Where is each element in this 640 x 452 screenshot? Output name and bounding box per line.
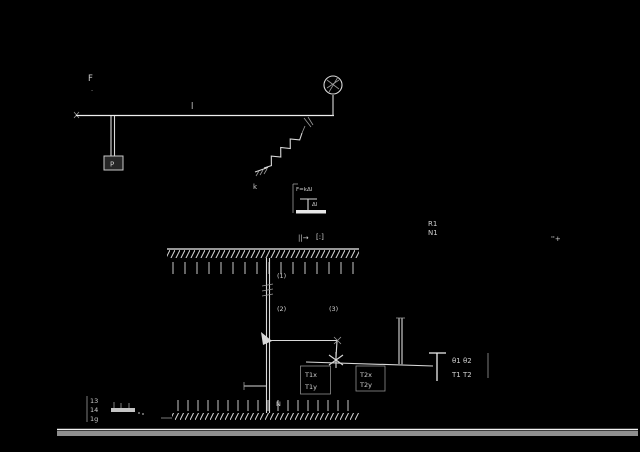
box2-line2: T2y bbox=[359, 381, 372, 389]
rope-binding-marks bbox=[262, 284, 273, 296]
force-label: F bbox=[88, 74, 93, 84]
wall-bracket bbox=[429, 353, 446, 381]
spring-attachment-knot bbox=[302, 117, 313, 133]
footnote-mini-bar bbox=[111, 408, 135, 412]
spring-constant-label: k bbox=[253, 183, 258, 191]
diagram-svg: F . l P k F=kΔl Δl ||→ [:] bbox=[0, 0, 640, 452]
side-label-row2: N1 bbox=[428, 229, 438, 237]
box1-line1: T1x bbox=[304, 371, 317, 379]
footnote-row-3: 1g bbox=[90, 415, 98, 423]
box2-line1: T2x bbox=[359, 371, 372, 379]
ceiling-hatch-band bbox=[167, 250, 359, 258]
footnote-block: 13 14 1g bbox=[87, 396, 144, 423]
equation-inset: F=kΔl Δl bbox=[293, 184, 326, 214]
top-diagram: F . l P k F=kΔl Δl bbox=[74, 74, 342, 214]
footnote-dot-2 bbox=[142, 413, 144, 415]
knot-star bbox=[329, 352, 343, 368]
horizontal-rope-right bbox=[306, 362, 433, 366]
rope-label-2: (2) bbox=[277, 305, 286, 313]
footnote-row-2: 14 bbox=[90, 406, 98, 414]
lower-diagram: ||→ [:] (1) (2) (3) T1x T1y T2x T2y θ1 θ… bbox=[57, 220, 638, 436]
ground-hatch-band bbox=[172, 413, 360, 420]
footnote-dot-1 bbox=[138, 412, 140, 414]
ground-tick-row bbox=[178, 400, 348, 411]
footnote-row-1: 13 bbox=[90, 397, 98, 405]
bracket-label-row2: T1 T2 bbox=[451, 371, 472, 379]
ceiling-tick-row bbox=[173, 262, 353, 274]
header-right-label: [:] bbox=[316, 233, 324, 241]
rope-label-1: (1) bbox=[277, 272, 286, 280]
corner-note: ''+ bbox=[551, 235, 561, 243]
box1-line2: T1y bbox=[304, 383, 317, 391]
weight-label: P bbox=[110, 161, 114, 169]
header-left-label: ||→ bbox=[298, 234, 309, 242]
inset-equation-2: Δl bbox=[312, 202, 318, 208]
figure-canvas: F . l P k F=kΔl Δl ||→ [:] bbox=[0, 0, 640, 452]
side-label-row1: R1 bbox=[428, 220, 437, 228]
beam-length-label: l bbox=[191, 102, 193, 112]
inset-equation-1: F=kΔl bbox=[296, 187, 313, 193]
inset-base bbox=[296, 210, 326, 214]
pulley-shading bbox=[327, 77, 339, 92]
force-sub-label: . bbox=[91, 85, 93, 93]
footnote-mini-ticks bbox=[114, 402, 129, 408]
rope-label-3: (3) bbox=[329, 305, 338, 313]
bracket-label-row1: θ1 θ2 bbox=[452, 357, 472, 365]
spring-zigzag bbox=[264, 133, 302, 168]
base-bar bbox=[57, 431, 638, 436]
